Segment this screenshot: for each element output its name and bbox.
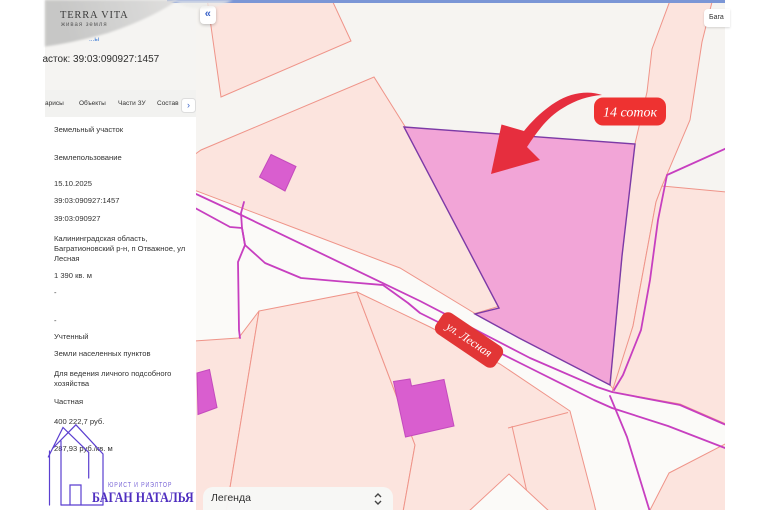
svg-text:14 соток: 14 соток [603, 106, 657, 121]
